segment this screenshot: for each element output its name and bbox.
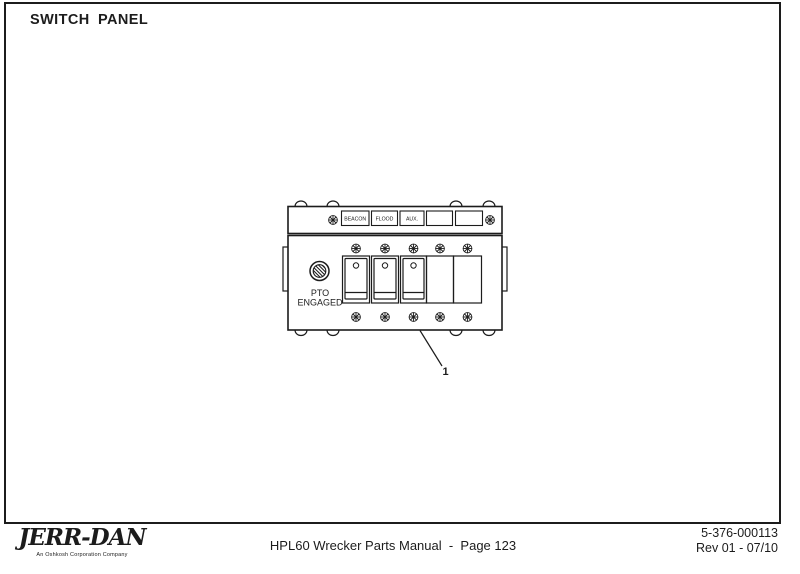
callout-leader-line: [420, 331, 442, 367]
screw-icon: [329, 216, 338, 225]
label-plate-flood: FLOOD: [376, 217, 394, 223]
pto-label-line2: ENGAGED: [297, 298, 343, 308]
screw-icon: [486, 216, 495, 225]
footer-doc-info: 5-376-000113 Rev 01 - 07/10: [696, 526, 778, 556]
callout-number: 1: [442, 366, 448, 378]
label-plate-aux: AUX.: [406, 217, 418, 223]
doc-number: 5-376-000113: [696, 526, 778, 541]
footer-manual-title: HPL60 Wrecker Parts Manual - Page 123: [0, 538, 786, 553]
page-title: SWITCH PANEL: [30, 12, 148, 28]
doc-revision: Rev 01 - 07/10: [696, 541, 778, 556]
pto-label-line1: PTO: [311, 288, 329, 298]
label-plate-beacon: BEACON: [344, 217, 366, 223]
switch-panel-diagram: BEACON FLOOD AUX.: [266, 192, 520, 388]
